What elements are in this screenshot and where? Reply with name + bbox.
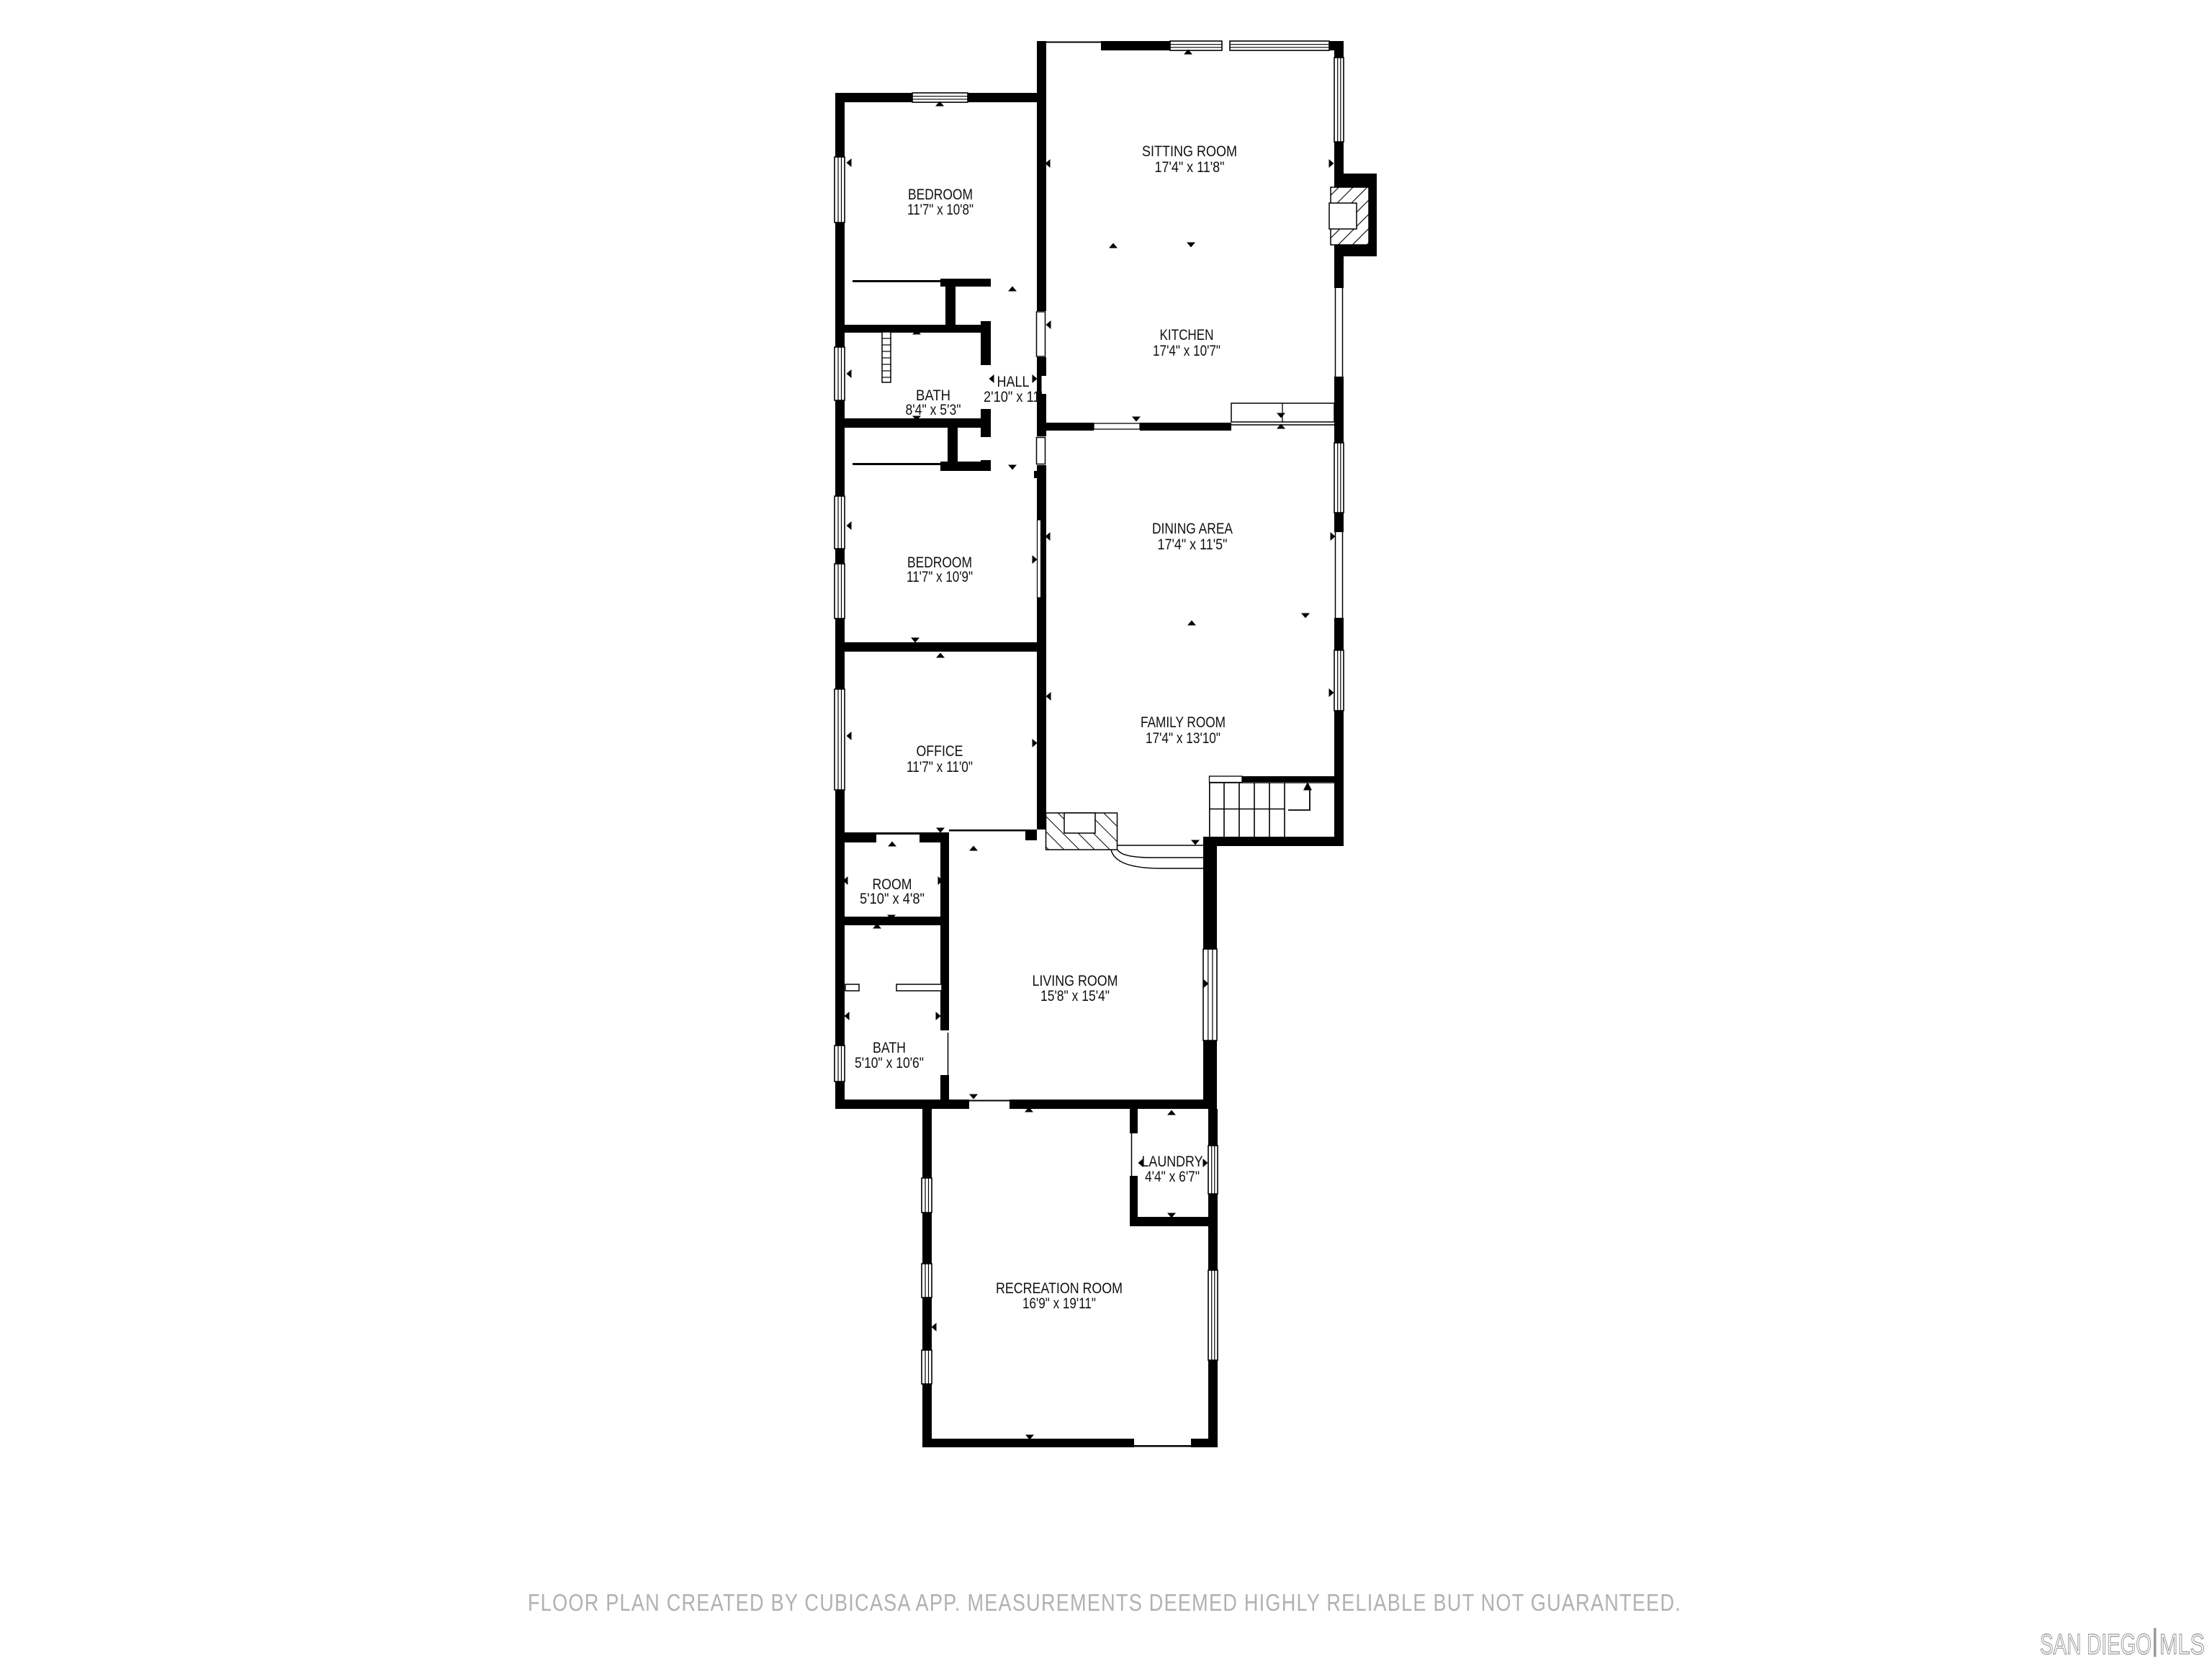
svg-text:4'4" x 6'7": 4'4" x 6'7" — [1145, 1169, 1200, 1185]
svg-text:5'10" x 4'8": 5'10" x 4'8" — [860, 891, 925, 907]
svg-text:15'8" x 15'4": 15'8" x 15'4" — [1040, 988, 1110, 1004]
svg-text:17'4" x 10'7": 17'4" x 10'7" — [1153, 343, 1220, 359]
svg-text:LIVING ROOM: LIVING ROOM — [1033, 973, 1118, 989]
svg-text:SAN DIEGO: SAN DIEGO — [2040, 1629, 2152, 1659]
svg-text:5'10" x 10'6": 5'10" x 10'6" — [855, 1055, 924, 1071]
svg-text:2'10" x 11': 2'10" x 11' — [984, 389, 1043, 405]
svg-text:FLOOR PLAN CREATED BY CUBICASA: FLOOR PLAN CREATED BY CUBICASA APP. MEAS… — [528, 1589, 1681, 1616]
svg-text:BEDROOM: BEDROOM — [908, 186, 973, 203]
svg-text:17'4" x 13'10": 17'4" x 13'10" — [1146, 730, 1220, 747]
svg-text:SITTING ROOM: SITTING ROOM — [1142, 143, 1237, 160]
svg-text:BATH: BATH — [873, 1040, 906, 1056]
svg-text:DINING AREA: DINING AREA — [1152, 521, 1233, 537]
svg-text:11'7" x 11'0": 11'7" x 11'0" — [907, 759, 973, 775]
svg-text:MLS: MLS — [2159, 1629, 2205, 1659]
svg-text:LAUNDRY: LAUNDRY — [1142, 1154, 1203, 1170]
svg-text:11'7" x 10'8": 11'7" x 10'8" — [907, 202, 974, 218]
svg-text:FAMILY ROOM: FAMILY ROOM — [1141, 714, 1226, 731]
svg-text:HALL: HALL — [997, 374, 1030, 390]
svg-text:16'9" x 19'11": 16'9" x 19'11" — [1022, 1295, 1096, 1312]
svg-text:RECREATION ROOM: RECREATION ROOM — [996, 1280, 1123, 1297]
svg-text:8'4" x 5'3": 8'4" x 5'3" — [906, 402, 961, 418]
svg-text:11'7" x 10'9": 11'7" x 10'9" — [907, 569, 973, 585]
svg-text:17'4" x 11'5": 17'4" x 11'5" — [1158, 536, 1228, 553]
svg-text:OFFICE: OFFICE — [917, 743, 963, 760]
svg-text:17'4" x 11'8": 17'4" x 11'8" — [1155, 159, 1225, 176]
svg-text:KITCHEN: KITCHEN — [1160, 327, 1214, 343]
